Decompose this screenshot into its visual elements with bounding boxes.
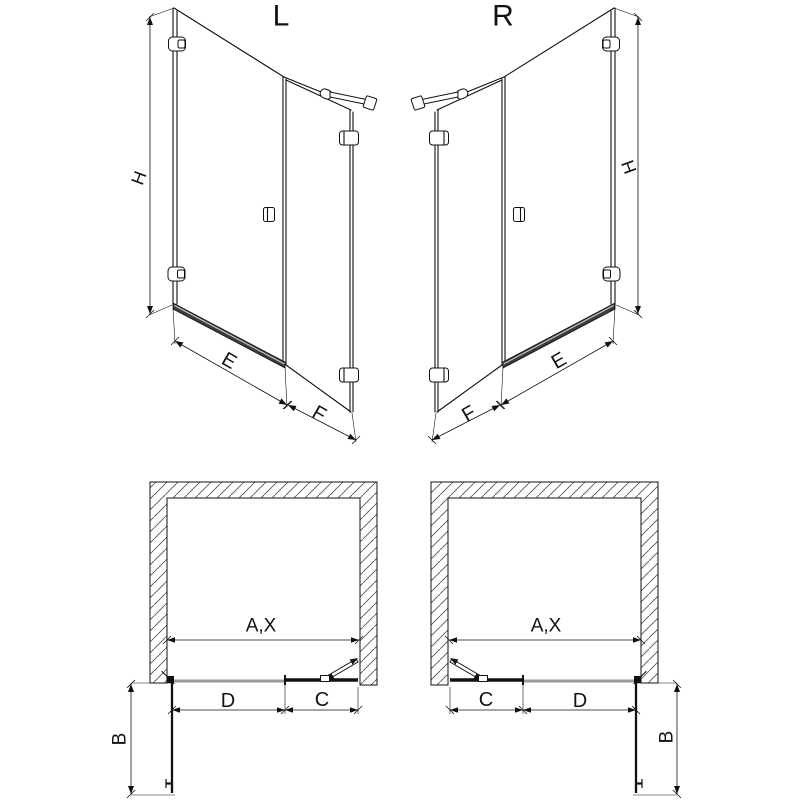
elevation-view-left (146, 8, 377, 444)
label-door-width-right: E (548, 348, 571, 374)
shower-door-diagram: L R H H E E F F A,X A,X D C C D B B (0, 0, 800, 800)
technical-drawing-page: L R H H E E F F A,X A,X D C C D B B (0, 0, 800, 800)
label-height-right: H (617, 157, 640, 176)
label-door-width-left: E (218, 348, 241, 374)
label-opening-right-plan: A,X (531, 616, 562, 637)
elevation-right-title: R (492, 0, 514, 33)
label-side-panel-left: F (308, 401, 330, 426)
wall-hatch-left-plan (150, 482, 377, 685)
label-height-left: H (127, 168, 150, 187)
label-door-left-plan: D (221, 690, 235, 712)
elevation-left-title: L (273, 0, 290, 33)
label-fixed-right-plan: C (479, 689, 493, 711)
label-opening-left-plan: A,X (246, 616, 277, 637)
label-fixed-left-plan: C (315, 689, 329, 711)
wall-hatch-right-plan (431, 482, 658, 685)
elevation-view-right (411, 8, 642, 444)
label-swing-left-plan: B (110, 733, 131, 746)
label-swing-right-plan: B (657, 731, 678, 744)
label-side-panel-right: F (458, 401, 480, 426)
label-door-right-plan: D (573, 690, 587, 712)
